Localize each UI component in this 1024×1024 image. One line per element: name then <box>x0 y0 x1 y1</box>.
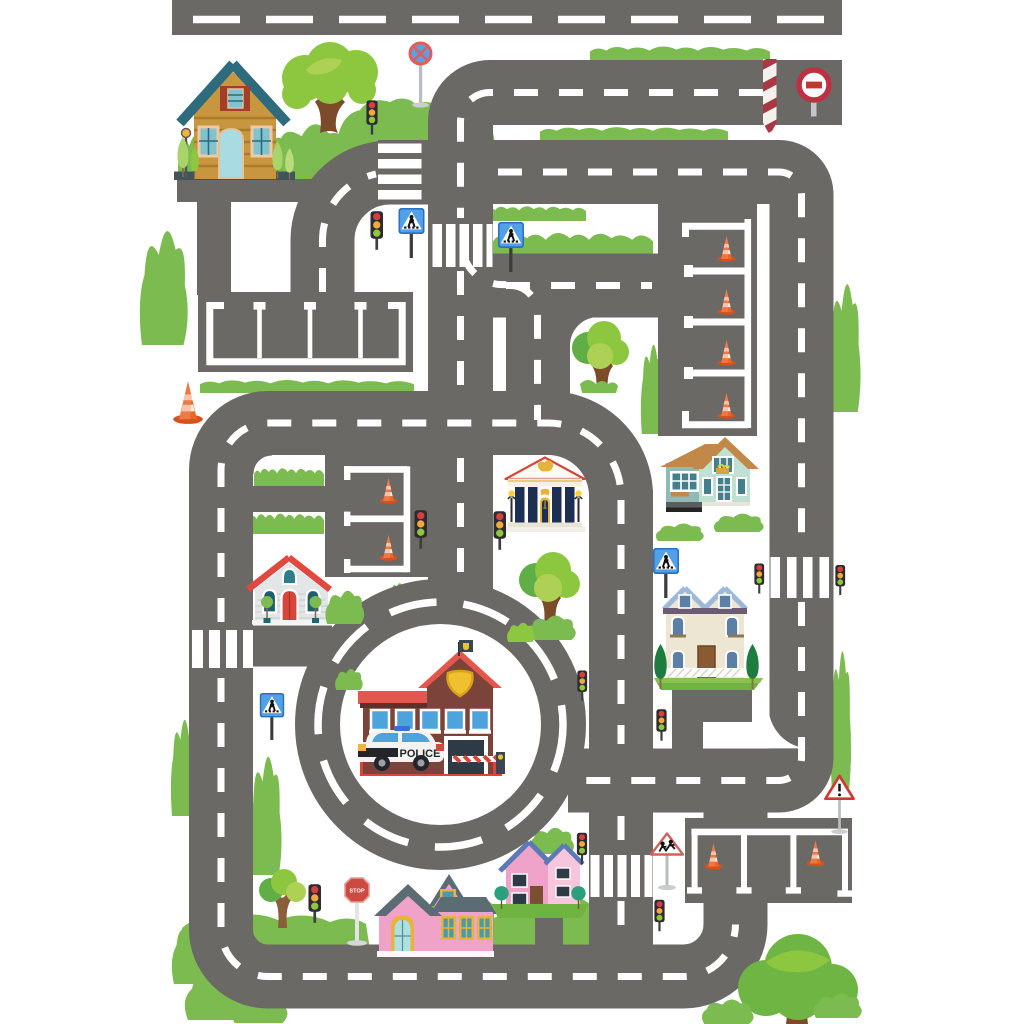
svg-text:STOP: STOP <box>349 889 364 895</box>
